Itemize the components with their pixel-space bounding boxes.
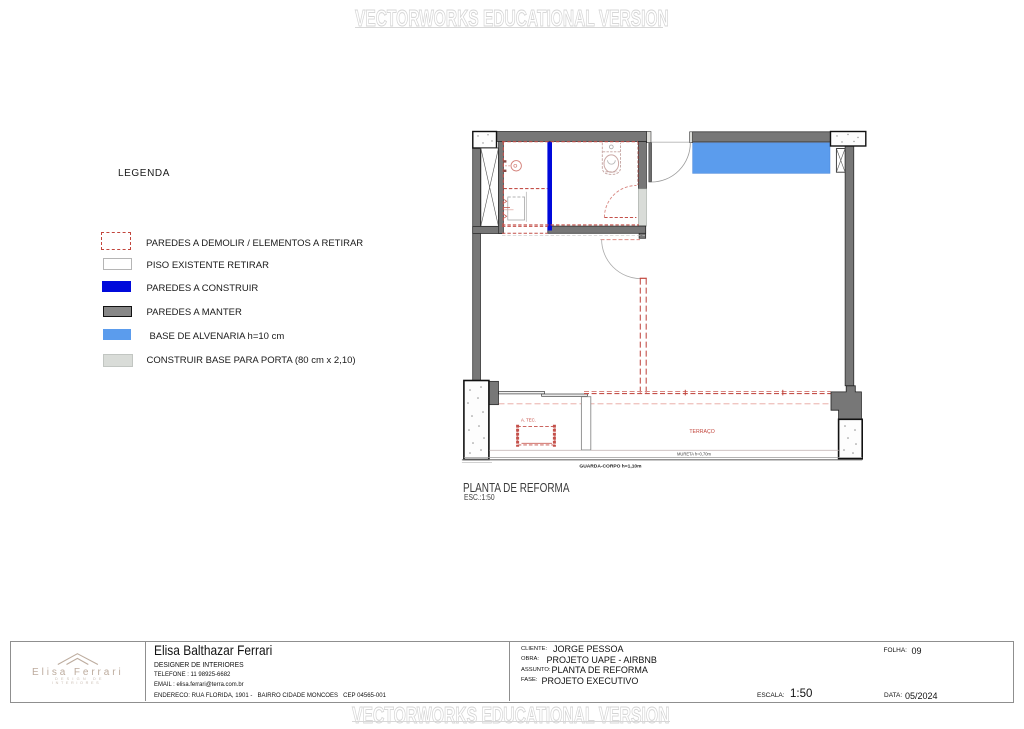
- svg-text:TERRAÇO: TERRAÇO: [689, 429, 714, 435]
- svg-text:GUARDA-CORPO h=1,10m: GUARDA-CORPO h=1,10m: [579, 464, 642, 470]
- svg-text:MURETA h=0,70m: MURETA h=0,70m: [677, 451, 712, 456]
- svg-text:A. TEC.: A. TEC.: [521, 418, 536, 423]
